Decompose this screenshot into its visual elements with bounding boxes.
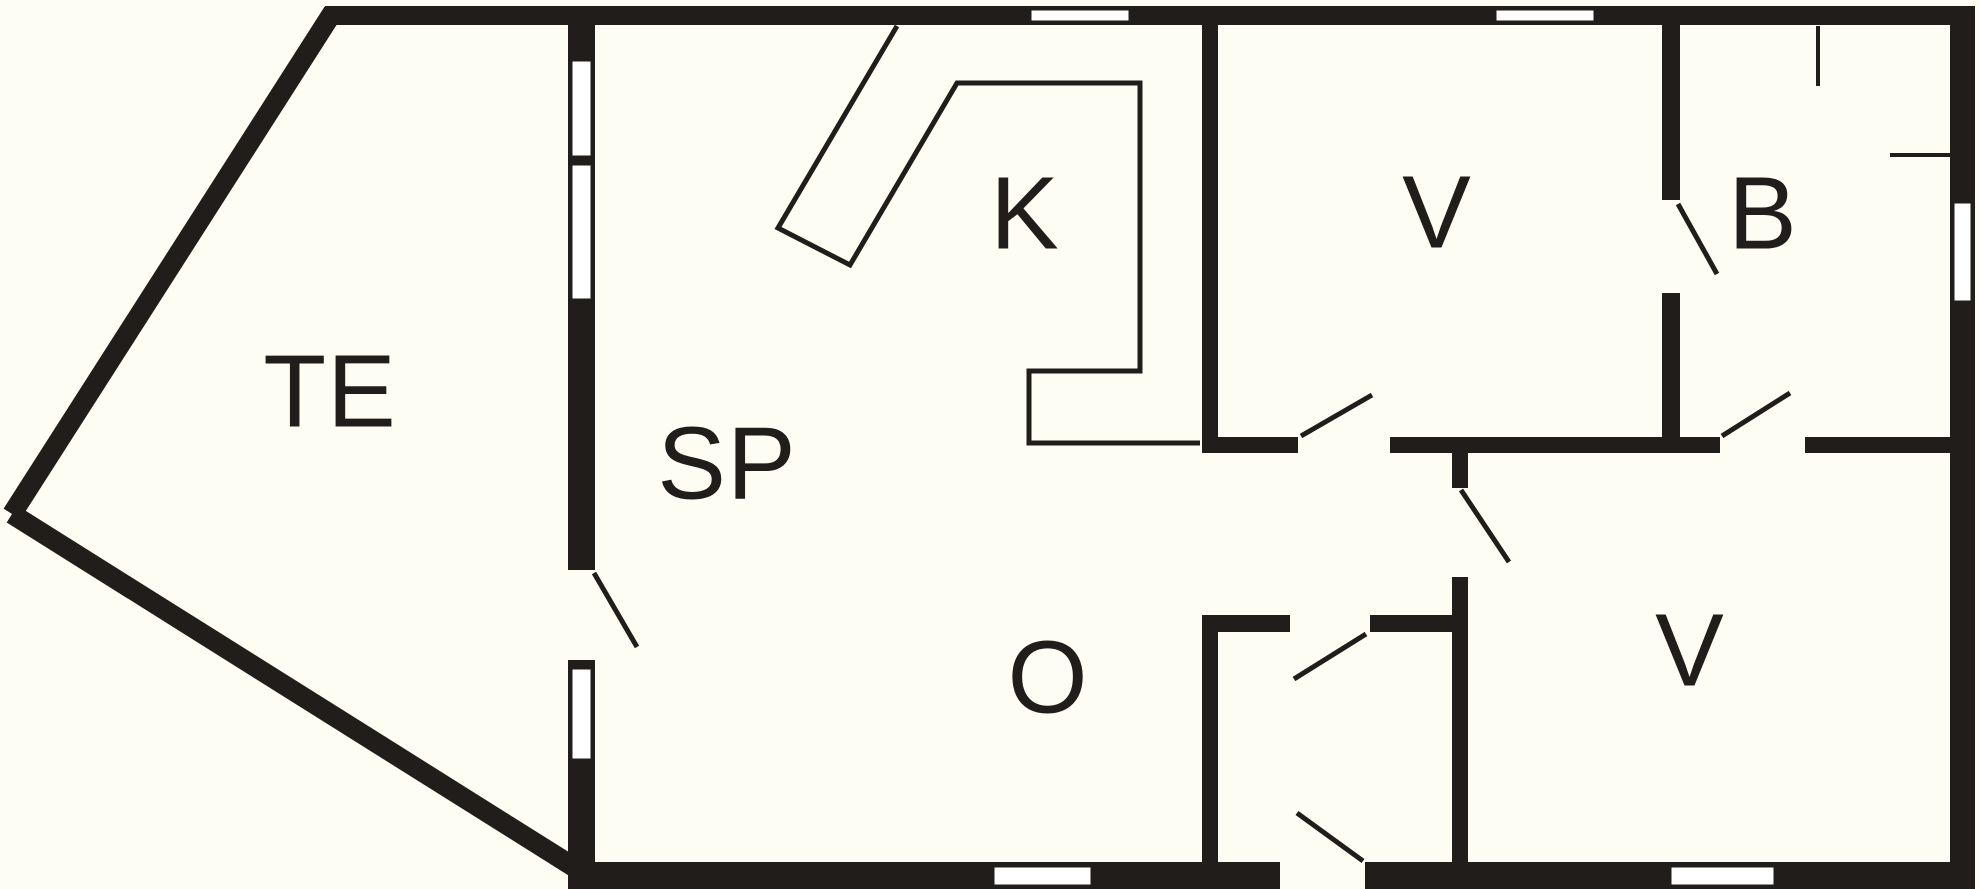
door-gap-te-sp [568,570,595,660]
window-te-wall-upper-1 [571,60,592,157]
floor-plan-canvas: TE SP K V B O V [0,0,1980,889]
wall-vestibule-top-left [1202,615,1290,632]
window-te-wall-upper-2 [571,164,592,300]
room-label-hall: O [1007,620,1088,735]
door-swing-te-sp [594,573,637,647]
wall-mid-horizontal-right [1805,437,1950,453]
window-top-wall-left [1030,9,1130,22]
room-label-terrace: TE [263,334,397,449]
door-swing-entrance [1297,813,1363,861]
window-bottom-wall-right [1670,866,1775,886]
wall-mid-horizontal-center [1390,437,1720,453]
room-label-bedroom-bottom: V [1655,593,1725,708]
window-top-wall-right [1495,9,1595,22]
door-swing-bathroom-west [1678,204,1717,274]
door-swing-bedroom-top [1301,395,1372,436]
door-swing-bedroom-bottom [1461,490,1509,562]
wall-terrace-lower-diagonal [12,514,585,874]
room-label-kitchen: K [990,156,1060,271]
wall-vestibule-top-right [1370,615,1468,632]
floor-plan: TE SP K V B O V [0,0,1980,889]
wall-hall-bedroom-stub [1452,453,1468,488]
wall-vb-divider-lower [1662,293,1680,437]
wall-kitchen-bedroom-divider [1202,25,1218,453]
wall-right-outer [1950,6,1975,889]
window-right-wall [1953,202,1972,302]
door-swing-vestibule-inner [1294,634,1366,679]
wall-vb-divider-upper [1662,25,1680,200]
wall-mid-horizontal-left [1202,437,1298,453]
window-bottom-wall-left [993,866,1092,886]
room-label-bathroom: B [1728,156,1798,271]
window-te-wall-lower [571,668,592,760]
kitchen-counter-outline [778,26,1200,443]
room-label-bedroom-top: V [1402,155,1472,270]
wall-vestibule-left [1202,615,1218,872]
door-gap-entrance [1280,862,1365,889]
door-swing-bathroom-south [1722,393,1790,436]
room-label-living-room: SP [657,406,796,521]
